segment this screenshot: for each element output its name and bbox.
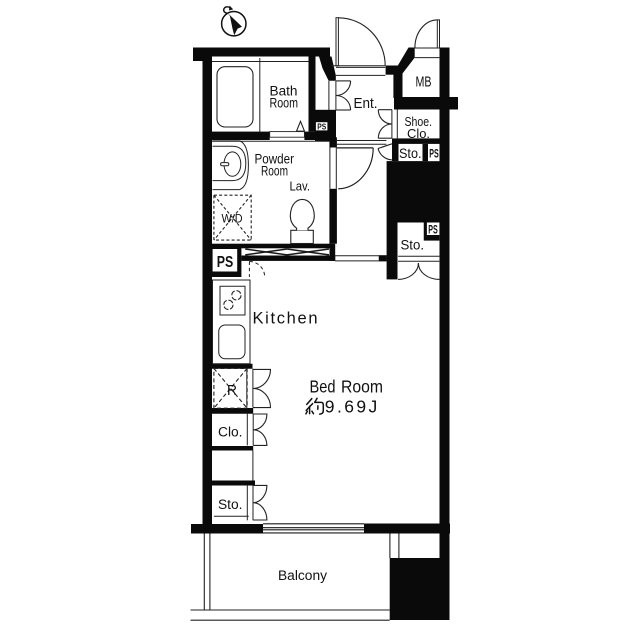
svg-text:PS: PS — [429, 149, 439, 161]
svg-text:Balcony: Balcony — [278, 568, 327, 583]
svg-text:W/D: W/D — [222, 212, 243, 226]
svg-text:Clo.: Clo. — [407, 126, 430, 141]
svg-text:MB: MB — [416, 75, 432, 91]
svg-text:9.69J: 9.69J — [325, 397, 378, 417]
svg-text:Room: Room — [341, 377, 383, 397]
svg-text:Sto.: Sto. — [218, 497, 243, 512]
svg-text:Room: Room — [270, 96, 299, 111]
svg-text:Bed: Bed — [310, 377, 336, 397]
svg-text:PS: PS — [317, 122, 326, 132]
svg-text:Clo.: Clo. — [218, 425, 243, 440]
svg-text:Sto.: Sto. — [401, 238, 425, 253]
svg-text:Sto.: Sto. — [399, 145, 422, 161]
svg-text:PS: PS — [217, 254, 234, 271]
svg-text:Room: Room — [261, 164, 288, 179]
svg-text:Lav.: Lav. — [290, 180, 311, 194]
svg-text:R: R — [227, 383, 237, 399]
svg-text:Ent.: Ent. — [354, 96, 378, 112]
svg-text:PS: PS — [428, 225, 438, 237]
